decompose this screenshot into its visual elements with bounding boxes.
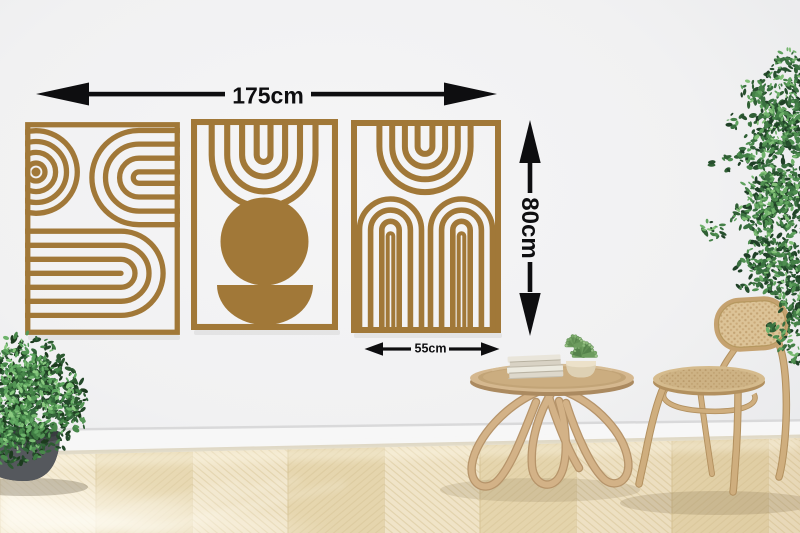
svg-text:55cm: 55cm bbox=[415, 342, 447, 356]
svg-text:175cm: 175cm bbox=[232, 83, 304, 109]
svg-text:80cm: 80cm bbox=[516, 197, 543, 258]
